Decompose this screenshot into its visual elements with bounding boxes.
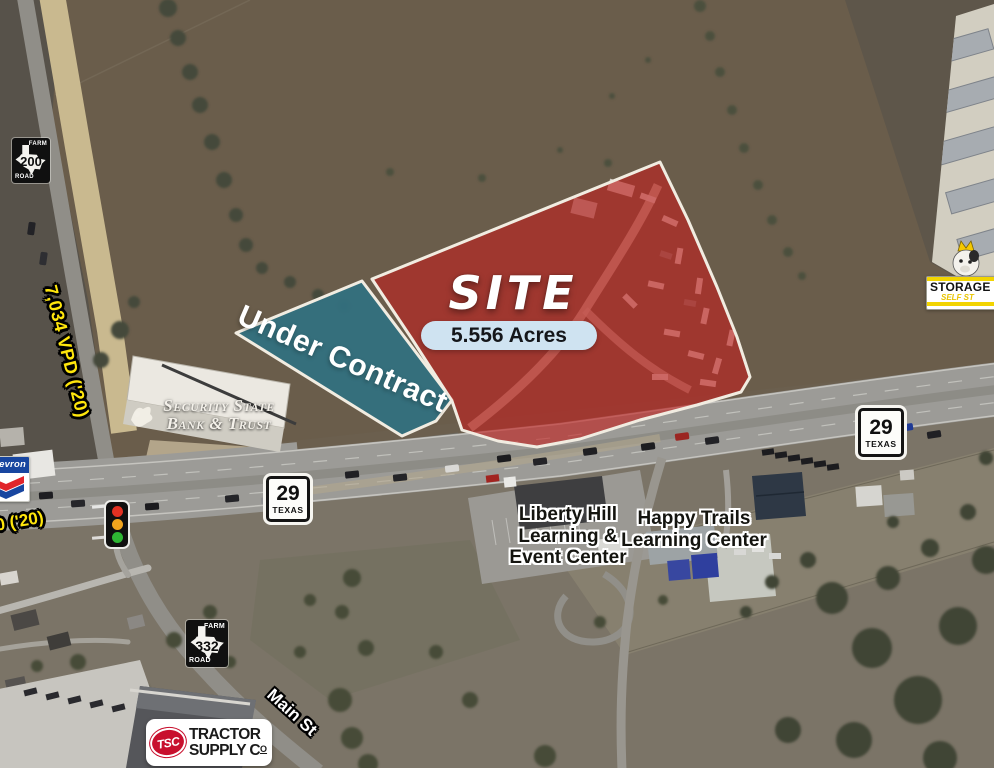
site-label: SITE <box>418 270 608 316</box>
happy-line1: Happy Trails <box>604 508 784 530</box>
tractor-supply-sign: TSC TRACTOR SUPPLY CO <box>146 719 272 766</box>
sign-stripe <box>927 302 994 306</box>
tsc-logo-icon: TSC <box>148 725 188 760</box>
chevron-hallmark-icon <box>0 473 29 501</box>
green-light <box>112 532 123 543</box>
tx-29-shield-east: 29 TEXAS <box>858 408 904 457</box>
tractor-line2: SUPPLY CO <box>189 742 267 758</box>
storage-king-sign: STORAGE K SELF ST <box>926 276 994 310</box>
shield-route-number: 200 <box>12 154 50 169</box>
bank-label-line1: Security State <box>148 397 290 415</box>
amber-light <box>112 519 123 530</box>
tractor-line1: TRACTOR <box>189 728 267 742</box>
fm-200-shield: FARM 200 ROAD <box>12 138 50 183</box>
happy-trails-label: Happy Trails Learning Center <box>604 508 784 551</box>
shield-route-number: 332 <box>186 638 228 654</box>
shield-route-number: 29 <box>276 483 299 504</box>
happy-line2: Learning Center <box>604 530 784 552</box>
shield-farm-text: FARM <box>204 623 225 630</box>
chevron-sign: Chevron <box>0 456 30 502</box>
shield-state-text: TEXAS <box>865 439 896 449</box>
acreage-value: 5.556 Acres <box>421 321 597 350</box>
self-storage-text: SELF ST <box>927 294 994 302</box>
traffic-light-icon <box>106 502 128 547</box>
shield-road-text: ROAD <box>189 657 211 664</box>
red-light <box>112 506 123 517</box>
acreage-pill: 5.556 Acres <box>421 321 597 350</box>
tsc-abbrev: TSC <box>156 734 181 752</box>
shield-route-number: 29 <box>869 417 892 438</box>
shield-state-text: TEXAS <box>272 505 303 515</box>
shield-farm-text: FARM <box>29 141 47 147</box>
storage-king-mascot-icon <box>946 238 986 278</box>
tractor-supply-text: TRACTOR SUPPLY CO <box>189 728 267 758</box>
fm-332-shield: FARM 332 ROAD <box>186 620 228 667</box>
tx-29-shield-west: 29 TEXAS <box>266 476 310 522</box>
shield-road-text: ROAD <box>15 174 34 180</box>
map-artwork <box>0 0 994 768</box>
bank-label-line2: Bank & Trust <box>148 415 290 433</box>
bank-label: Security State Bank & Trust <box>148 397 290 433</box>
chevron-wordmark: Chevron <box>0 457 29 473</box>
aerial-site-map: SITE 5.556 Acres Under Contract 7,034 VP… <box>0 0 994 768</box>
